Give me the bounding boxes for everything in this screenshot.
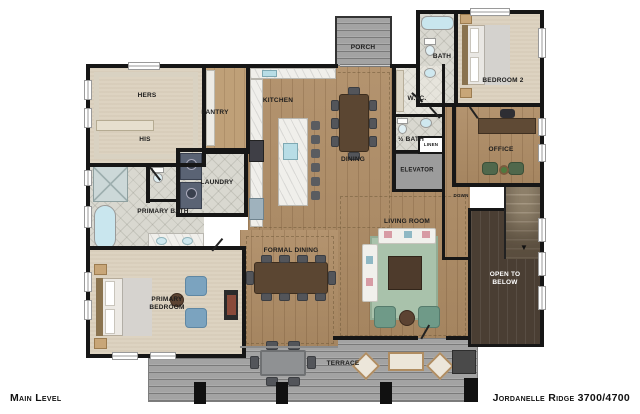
outdoor-chair: [288, 377, 300, 386]
bar-stool: [311, 135, 320, 144]
room-label-linen: LINEN: [424, 142, 439, 148]
formal-dining-table: [254, 262, 328, 294]
sofa-pillow: [422, 231, 430, 238]
terrace-post: [380, 382, 392, 404]
window: [150, 352, 176, 360]
bathtub: [421, 16, 454, 30]
room-label-bath: BATH: [433, 53, 451, 61]
dining-table: [339, 94, 369, 152]
room-label-elevator: ELEVATOR: [400, 167, 433, 175]
vanity-sink: [182, 237, 193, 245]
room-label-bedroom2: BEDROOM 2: [482, 77, 523, 85]
outdoor-chair: [250, 356, 259, 369]
wall-segment: [442, 192, 445, 260]
wall-segment: [176, 148, 248, 152]
guest-chair: [508, 162, 524, 175]
room-label-his: HIS: [139, 136, 150, 144]
dining-chair: [331, 118, 339, 129]
sofa: [362, 244, 378, 302]
sink: [424, 68, 436, 78]
dryer-door: [186, 188, 197, 199]
sofa-pillow: [404, 231, 412, 238]
bar-stool: [311, 149, 320, 158]
wall-segment: [416, 10, 420, 107]
refrigerator: [249, 198, 264, 220]
bed-pillow: [105, 309, 115, 334]
sliding-door-line: [240, 346, 338, 348]
office-chair: [500, 109, 515, 118]
dining-chair: [261, 255, 272, 263]
wall-segment: [452, 183, 544, 187]
nightstand: [460, 88, 472, 98]
terrace-post: [464, 378, 478, 402]
room-label-laundry: LAUNDRY: [201, 179, 234, 187]
wall-segment: [244, 148, 248, 217]
window: [128, 62, 160, 70]
room-label-kitchen: KITCHEN: [263, 97, 293, 105]
wall-segment: [392, 64, 396, 192]
closet-island: [96, 120, 154, 131]
wall-segment: [452, 103, 456, 187]
dining-chair: [297, 255, 308, 263]
bed-pillow: [470, 57, 479, 82]
wall-segment: [442, 64, 445, 192]
wall-segment: [86, 64, 338, 68]
sliding-door-line: [340, 64, 390, 67]
dining-chair: [279, 255, 290, 263]
wic-shelf: [396, 70, 404, 112]
window: [538, 118, 546, 136]
plant-icon: [501, 167, 507, 173]
window: [84, 272, 92, 292]
bar-stool: [311, 121, 320, 130]
kitchen-sink: [262, 70, 277, 77]
room-label-porch: PORCH: [351, 44, 375, 52]
window: [112, 352, 138, 360]
dining-chair: [297, 293, 308, 301]
window: [538, 144, 546, 162]
bar-stool: [311, 177, 320, 186]
room-label-open-to-below: OPEN TO BELOW: [481, 271, 529, 287]
window: [84, 80, 92, 100]
guest-chair: [482, 162, 498, 175]
bed-headboard: [462, 25, 468, 85]
wall-segment: [146, 199, 180, 202]
room-label-terrace: TERRACE: [327, 360, 360, 368]
side-table: [399, 310, 415, 326]
room-label-formal-dining: FORMAL DINING: [264, 247, 319, 255]
window: [84, 300, 92, 320]
wall-segment: [392, 189, 445, 192]
room-label-pantry: PANTRY: [201, 109, 228, 117]
outdoor-table: [260, 350, 306, 376]
toilet: [424, 38, 436, 45]
room-label-primary-bedroom: PRIMARY BEDROOM: [144, 296, 190, 312]
floor-plan-canvas: ▼: [0, 0, 640, 414]
down-arrow-icon: ▼: [520, 243, 528, 252]
room-label-half-bath: ½ BATH: [398, 136, 424, 144]
dining-chair: [348, 87, 360, 95]
window: [84, 206, 92, 228]
bar-stool: [311, 163, 320, 172]
dining-chair: [369, 118, 377, 129]
grill: [452, 350, 476, 374]
shower: [93, 166, 128, 202]
nightstand: [94, 264, 107, 275]
bed-headboard: [96, 278, 103, 336]
wall-segment: [86, 246, 246, 250]
outdoor-chair: [307, 356, 316, 369]
terrace-post: [194, 382, 206, 404]
window: [538, 286, 546, 310]
dining-chair: [331, 100, 339, 111]
window: [470, 8, 510, 16]
wall-segment: [333, 336, 418, 340]
room-label-dining: DINING: [341, 156, 365, 164]
stair-rail: [504, 185, 506, 259]
plan-title-level: Main Level: [10, 392, 61, 404]
accent-chair: [185, 276, 207, 296]
sofa-pillow: [384, 231, 392, 238]
nightstand: [94, 338, 107, 349]
wall-segment: [146, 163, 150, 203]
swivel-chair: [374, 306, 396, 328]
wall-segment: [176, 148, 180, 217]
sofa-pillow: [366, 278, 373, 286]
sofa-pillow: [366, 256, 373, 264]
coffee-table: [388, 256, 422, 290]
bed-pillow: [105, 281, 115, 306]
room-label-primary-bath: PRIMARY BATH: [137, 208, 188, 216]
kitchen-island: [278, 118, 308, 206]
dining-chair: [315, 293, 326, 301]
fireplace-firebox: [227, 295, 236, 315]
closet-shelving: [94, 72, 198, 159]
room-porch: [335, 16, 392, 66]
plan-title-model: Jordanelle Ridge 3700/4700: [493, 392, 630, 404]
terrace-post: [276, 382, 288, 404]
wall-segment: [442, 257, 470, 260]
window: [84, 108, 92, 128]
room-label-office: OFFICE: [488, 146, 513, 154]
island-sink: [283, 143, 298, 160]
range: [249, 140, 264, 162]
room-label-wic: W.I.C.: [408, 95, 427, 103]
window: [538, 28, 546, 58]
dining-chair: [369, 136, 377, 147]
dining-chair: [331, 136, 339, 147]
room-label-living-room: LIVING ROOM: [384, 218, 430, 226]
outdoor-sofa: [388, 352, 424, 371]
dining-chair: [369, 100, 377, 111]
window: [84, 170, 92, 186]
office-desk: [478, 118, 536, 134]
wall-segment: [242, 246, 246, 358]
dining-chair: [261, 293, 272, 301]
wall-segment: [246, 64, 250, 154]
dining-chair: [246, 271, 254, 285]
dining-chair: [315, 255, 326, 263]
sink: [420, 118, 432, 128]
dining-chair: [279, 293, 290, 301]
bed-pillow: [470, 28, 479, 53]
room-label-hers: HERS: [138, 92, 157, 100]
freestanding-tub: [94, 205, 116, 250]
window: [538, 252, 546, 276]
vanity-sink: [156, 237, 167, 245]
toilet-bowl: [398, 124, 407, 134]
wall-segment: [446, 336, 470, 340]
window: [538, 218, 546, 242]
wall-segment: [454, 10, 458, 107]
room-label-down: DOWN: [453, 193, 468, 199]
dining-chair: [328, 271, 336, 285]
wall-segment: [416, 103, 544, 107]
bar-stool: [311, 191, 320, 200]
